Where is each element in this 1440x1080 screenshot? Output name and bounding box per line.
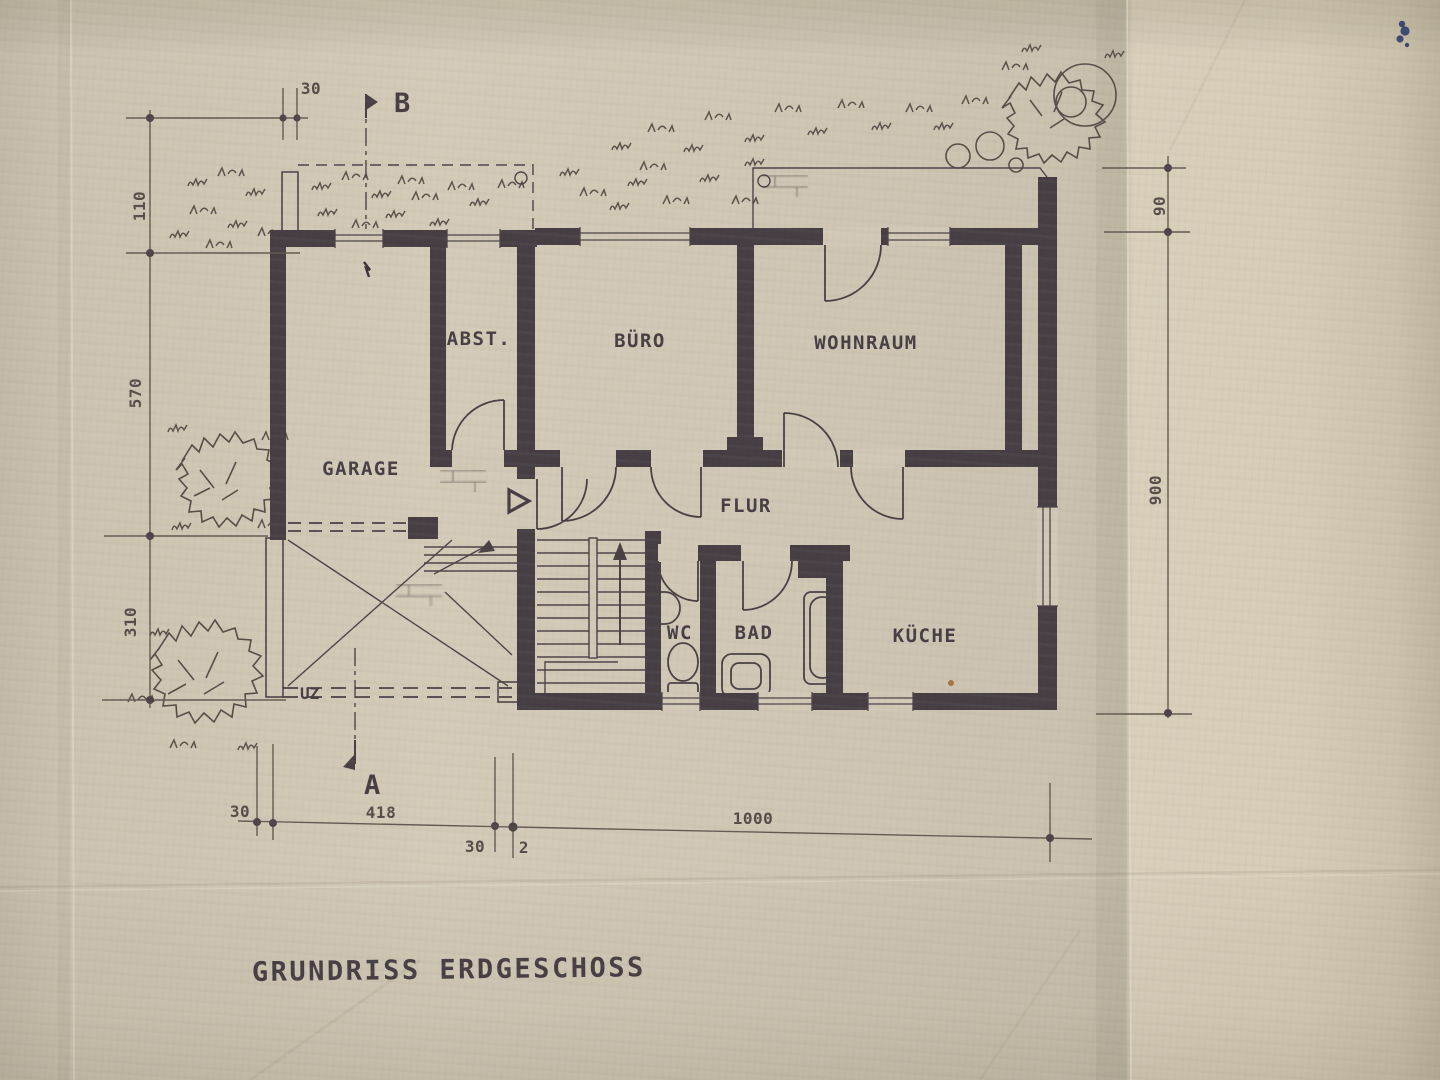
house-left-wall-upper <box>517 230 535 479</box>
hatched-pier-top-left <box>282 172 298 232</box>
stair-handrail <box>589 538 597 658</box>
room-label-flur: FLUR <box>720 495 772 517</box>
dim-bottom-1000: 1000 <box>733 809 774 828</box>
dim-left-110: 110 <box>130 191 149 221</box>
ramp-paving <box>396 584 514 682</box>
scanned-floorplan-page: GARAGE ABST. BÜRO WOHNRAUM FLUR WC BAD K… <box>0 0 1440 1080</box>
buero-wohnraum-divider <box>737 245 754 441</box>
hatched-post <box>498 682 518 702</box>
dim-right-900: 900 <box>1146 475 1165 505</box>
room-label-abst: ABST. <box>447 328 512 350</box>
paper-background <box>0 0 1440 1080</box>
dim-top-left-30: 30 <box>301 79 321 98</box>
right-outer-wall-upper <box>1038 177 1057 507</box>
dim-left-310: 310 <box>121 607 140 637</box>
section-b-label: B <box>394 88 410 119</box>
garage-door-pier <box>408 517 438 539</box>
garage-abst-divider <box>430 247 446 452</box>
room-label-garage: GARAGE <box>322 458 400 480</box>
room-label-buero: BÜRO <box>614 328 666 352</box>
house-left-wall-lower <box>517 529 535 710</box>
wc-bad-divider <box>700 561 716 697</box>
hatched-wall-left <box>266 538 283 697</box>
dim-bottom-418: 418 <box>366 803 396 822</box>
terrace-paving <box>762 175 887 223</box>
uz-label: UZ <box>300 684 320 703</box>
room-label-kueche: KÜCHE <box>893 623 958 647</box>
dim-bottom-30a: 30 <box>230 802 250 821</box>
right-outer-wall-lower <box>1038 606 1057 710</box>
wohnraum-right-wall <box>1005 245 1022 454</box>
dim-bottom-2: 2 <box>519 838 529 857</box>
room-label-wc: WC <box>667 622 693 644</box>
garage-left-wall <box>270 230 286 540</box>
dim-bottom-30b: 30 <box>465 837 485 856</box>
section-a-label: A <box>364 770 380 801</box>
floorplan-drawing: GARAGE ABST. BÜRO WOHNRAUM FLUR WC BAD K… <box>0 0 1440 1080</box>
middle-wall <box>430 450 1057 467</box>
bad-kueche-divider <box>826 578 843 695</box>
room-label-bad: BAD <box>735 622 774 644</box>
room-label-wohnraum: WOHNRAUM <box>814 332 918 354</box>
drawing-title: GRUNDRISS ERDGESCHOSS <box>252 952 646 988</box>
dim-left-570: 570 <box>126 378 145 408</box>
rust-speck <box>948 680 954 686</box>
dim-right-90: 90 <box>1150 196 1169 216</box>
entry-porch-paving <box>440 470 528 534</box>
bad-kueche-post <box>798 545 843 578</box>
